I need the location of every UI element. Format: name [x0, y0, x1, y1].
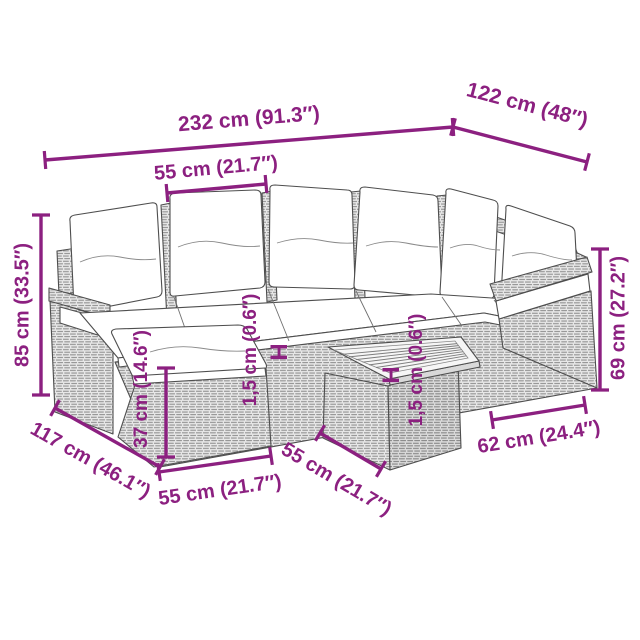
product-dimension-diagram: 232 cm (91.3″) 122 cm (48″) 55 cm (21.7″… [0, 0, 640, 640]
dim-ottoman-height-label: 37 cm (14.6″) [131, 330, 152, 448]
dim-seat-cushion-thickness-label: 1,5 cm (0.6″) [240, 294, 261, 407]
dim-table-top-width-label: 62 cm (24.4″) [476, 417, 602, 459]
dim-back-height-label: 85 cm (33.5″) [11, 243, 33, 367]
dim-back-height: 85 cm (33.5″) [11, 215, 50, 395]
dim-side-depth-label: 122 cm (48″) [464, 78, 590, 132]
dim-total-length-label: 232 cm (91.3″) [177, 102, 320, 136]
dim-arm-height-right: 69 cm (27.2″) [591, 249, 629, 390]
height-marker-icon: H [377, 366, 404, 383]
dim-seat-module-width-label: 55 cm (21.7″) [153, 152, 279, 185]
dim-ottoman-width-label: 55 cm (21.7″) [157, 471, 283, 510]
dim-side-depth: 122 cm (48″) [451, 78, 591, 171]
dim-arm-height-right-label: 69 cm (27.2″) [607, 256, 629, 380]
left-armrest [49, 288, 113, 434]
dim-table-top-thickness-label: 1,5 cm (0.6″) [406, 314, 427, 427]
height-marker-icon: H [265, 343, 292, 360]
